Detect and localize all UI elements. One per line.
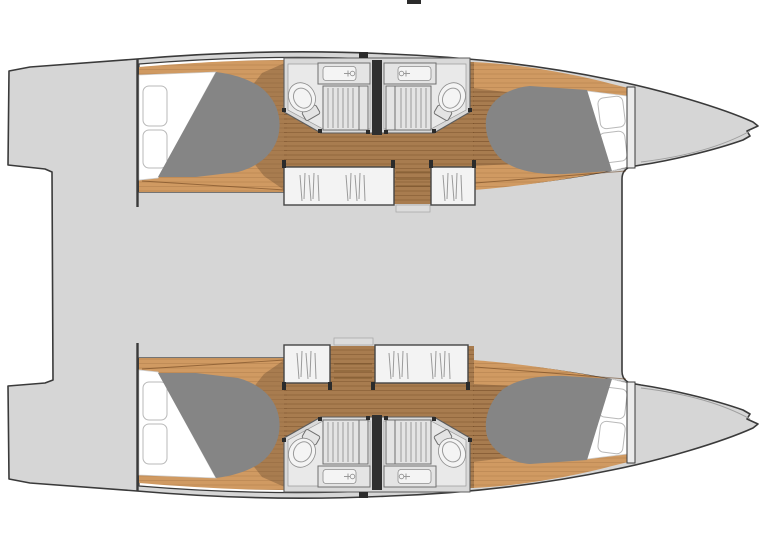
door-post (371, 382, 375, 390)
door-post (328, 382, 332, 390)
door-post (472, 160, 476, 168)
floor-plan-canvas (0, 0, 770, 550)
door-post (282, 382, 286, 390)
heads-divider-wall (372, 60, 382, 135)
wardrobe-small (284, 345, 330, 383)
pillow (143, 130, 167, 168)
door-post (429, 160, 433, 168)
wardrobe-large (375, 345, 468, 383)
companionway-step (396, 205, 430, 212)
door-post (282, 160, 286, 168)
door-post (466, 382, 470, 390)
hull-bottom-wardrobes-stairs (282, 338, 470, 390)
faucet-base-icon (350, 71, 355, 76)
mast-mark (407, 0, 421, 4)
forward-cabin-bed (486, 86, 628, 174)
hull-top-wardrobes-stairs (282, 160, 476, 212)
door-post (318, 129, 322, 133)
wardrobe-box (375, 345, 468, 383)
door-post (391, 160, 395, 168)
forward-bulkhead (627, 87, 635, 168)
wardrobe-small (431, 167, 475, 205)
door-post (366, 130, 370, 134)
shower-panel (359, 86, 368, 130)
pillow (143, 86, 167, 126)
pillow (597, 96, 626, 130)
head-compartments (282, 58, 472, 135)
deck-fitting-mark (359, 52, 368, 58)
door-post (282, 108, 286, 112)
companionway-step (334, 338, 373, 345)
catamaran-floor-plan (0, 0, 770, 550)
wardrobe-large (284, 167, 394, 205)
